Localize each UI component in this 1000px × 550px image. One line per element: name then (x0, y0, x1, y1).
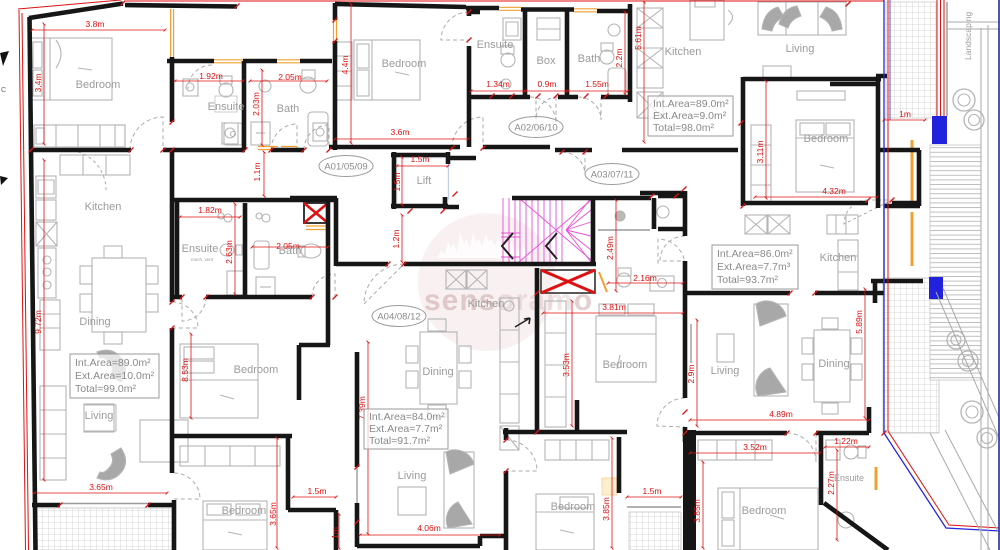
svg-text:Kitchen: Kitchen (820, 252, 857, 264)
svg-text:1m: 1m (330, 527, 340, 539)
svg-text:Bedroom: Bedroom (603, 359, 648, 371)
svg-text:2.63m: 2.63m (224, 240, 234, 264)
svg-text:5.61m: 5.61m (633, 26, 643, 50)
svg-text:Ensuite: Ensuite (834, 473, 864, 483)
svg-text:Bedroom: Bedroom (222, 505, 267, 517)
svg-text:3.4m: 3.4m (33, 74, 43, 93)
svg-text:Bedroom: Bedroom (76, 79, 121, 91)
svg-text:5.89m: 5.89m (854, 310, 864, 334)
svg-text:1.34m: 1.34m (486, 79, 510, 89)
svg-text:Living: Living (786, 43, 815, 55)
svg-text:8.53m: 8.53m (180, 358, 190, 382)
svg-text:1.5m: 1.5m (392, 173, 402, 192)
svg-text:Bath: Bath (279, 245, 302, 257)
svg-text:A04/08/12: A04/08/12 (377, 312, 420, 323)
svg-text:Bedroom: Bedroom (804, 133, 849, 145)
svg-text:3.6m: 3.6m (391, 127, 410, 137)
svg-text:Total=99.0m²: Total=99.0m² (75, 383, 136, 395)
svg-text:2.03m: 2.03m (251, 92, 261, 116)
svg-text:Ext.Area=10.0m²: Ext.Area=10.0m² (75, 370, 155, 382)
svg-text:3.81m: 3.81m (602, 302, 626, 312)
svg-text:Box: Box (537, 55, 556, 67)
svg-text:mech. vent: mech. vent (191, 257, 214, 262)
svg-text:Ext.Area=7.7m²: Ext.Area=7.7m² (369, 423, 443, 435)
svg-text:1m: 1m (899, 109, 911, 119)
svg-text:Kitchen: Kitchen (665, 46, 702, 58)
svg-text:Bedroom: Bedroom (234, 364, 279, 376)
svg-text:1.2m: 1.2m (391, 230, 401, 249)
svg-text:Int.Area=89.0m²: Int.Area=89.0m² (75, 357, 151, 369)
svg-text:Ext.Area=7.7m³: Ext.Area=7.7m³ (717, 261, 791, 273)
svg-text:C: C (1, 87, 6, 94)
svg-text:Bedroom: Bedroom (742, 505, 787, 517)
svg-text:2.49m: 2.49m (605, 236, 615, 260)
svg-text:Ensuite: Ensuite (182, 243, 219, 255)
svg-text:2.9m: 2.9m (686, 365, 696, 384)
svg-text:3.85m: 3.85m (601, 497, 611, 521)
svg-text:Bath: Bath (277, 103, 300, 115)
svg-text:3.85m: 3.85m (692, 499, 702, 523)
svg-text:1.5m: 1.5m (643, 486, 662, 496)
svg-text:0.9m: 0.9m (538, 79, 557, 89)
svg-text:2.16m: 2.16m (633, 273, 657, 283)
svg-text:1.22m: 1.22m (834, 436, 858, 446)
svg-text:A01/05/09: A01/05/09 (324, 162, 367, 173)
svg-text:2.2m: 2.2m (614, 49, 624, 68)
svg-text:Int.Area=84.0m²: Int.Area=84.0m² (369, 411, 445, 423)
svg-text:Lift: Lift (417, 175, 432, 187)
svg-text:Ext.Area=9.0m²: Ext.Area=9.0m² (653, 110, 727, 122)
svg-text:3.11m: 3.11m (755, 141, 765, 164)
svg-text:Dining: Dining (79, 316, 110, 328)
svg-text:3.65m: 3.65m (268, 502, 278, 526)
svg-text:1.55m: 1.55m (585, 79, 609, 89)
svg-text:1.1m: 1.1m (252, 163, 262, 182)
svg-text:1.5m: 1.5m (411, 154, 430, 164)
svg-text:1.82m: 1.82m (198, 205, 222, 215)
svg-text:Bedroom: Bedroom (551, 501, 596, 513)
svg-text:9.72m: 9.72m (33, 310, 43, 334)
svg-text:A02/06/10: A02/06/10 (514, 123, 557, 134)
svg-text:Dining: Dining (422, 366, 453, 378)
svg-text:Int.Area=86.0m²: Int.Area=86.0m² (717, 248, 793, 260)
svg-text:1.5m: 1.5m (308, 486, 327, 496)
svg-text:4.32m: 4.32m (822, 186, 846, 196)
svg-text:Bedroom: Bedroom (382, 58, 427, 70)
svg-text:A03/07/11: A03/07/11 (591, 170, 634, 181)
svg-text:3.53m: 3.53m (561, 353, 571, 377)
svg-text:3.8m: 3.8m (86, 19, 105, 29)
svg-text:Living: Living (711, 365, 740, 377)
svg-text:Total=98.0m²: Total=98.0m² (653, 122, 714, 134)
svg-text:Int.Area=89.0m²: Int.Area=89.0m² (653, 98, 729, 110)
svg-text:Living: Living (398, 470, 427, 482)
svg-text:4.06m: 4.06m (417, 523, 441, 533)
svg-text:Ensuite: Ensuite (477, 39, 514, 51)
svg-text:Total=91.7m²: Total=91.7m² (369, 435, 430, 447)
svg-text:Ensuite: Ensuite (208, 101, 245, 113)
svg-text:Landscaping: Landscaping (963, 12, 973, 60)
svg-text:3.65m: 3.65m (89, 482, 113, 492)
svg-text:1.92m: 1.92m (199, 71, 223, 81)
svg-text:2.05m: 2.05m (278, 72, 302, 82)
svg-text:Kitchen: Kitchen (468, 298, 505, 310)
svg-text:4.89m: 4.89m (769, 409, 793, 419)
svg-text:Kitchen: Kitchen (85, 201, 122, 213)
svg-text:Living: Living (85, 410, 114, 422)
svg-text:Dining: Dining (818, 358, 849, 370)
svg-text:Total=93.7m²: Total=93.7m² (717, 274, 778, 286)
svg-text:3.52m: 3.52m (743, 442, 767, 452)
svg-text:Bath: Bath (578, 53, 601, 65)
svg-text:4.4m: 4.4m (340, 56, 350, 75)
